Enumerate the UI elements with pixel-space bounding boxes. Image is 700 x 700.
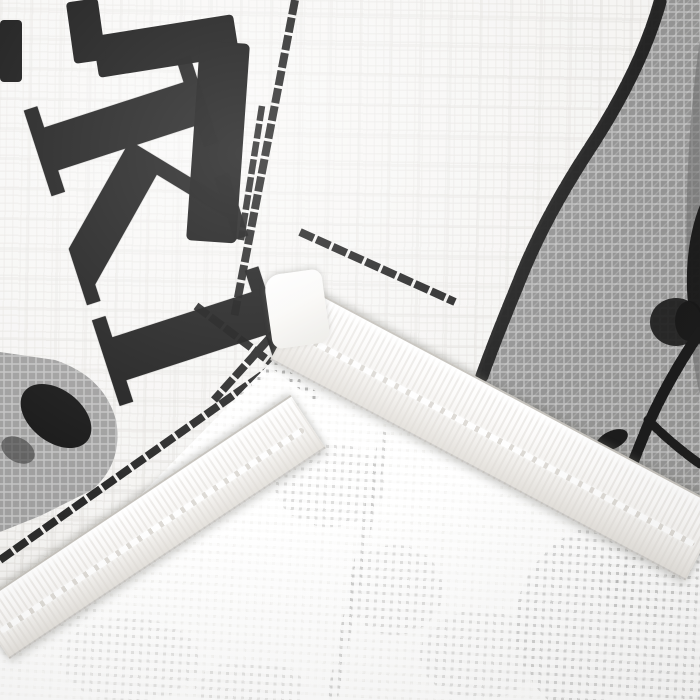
hem-corner [263, 268, 331, 349]
kitchen-towel-photo: KI [0, 0, 700, 700]
